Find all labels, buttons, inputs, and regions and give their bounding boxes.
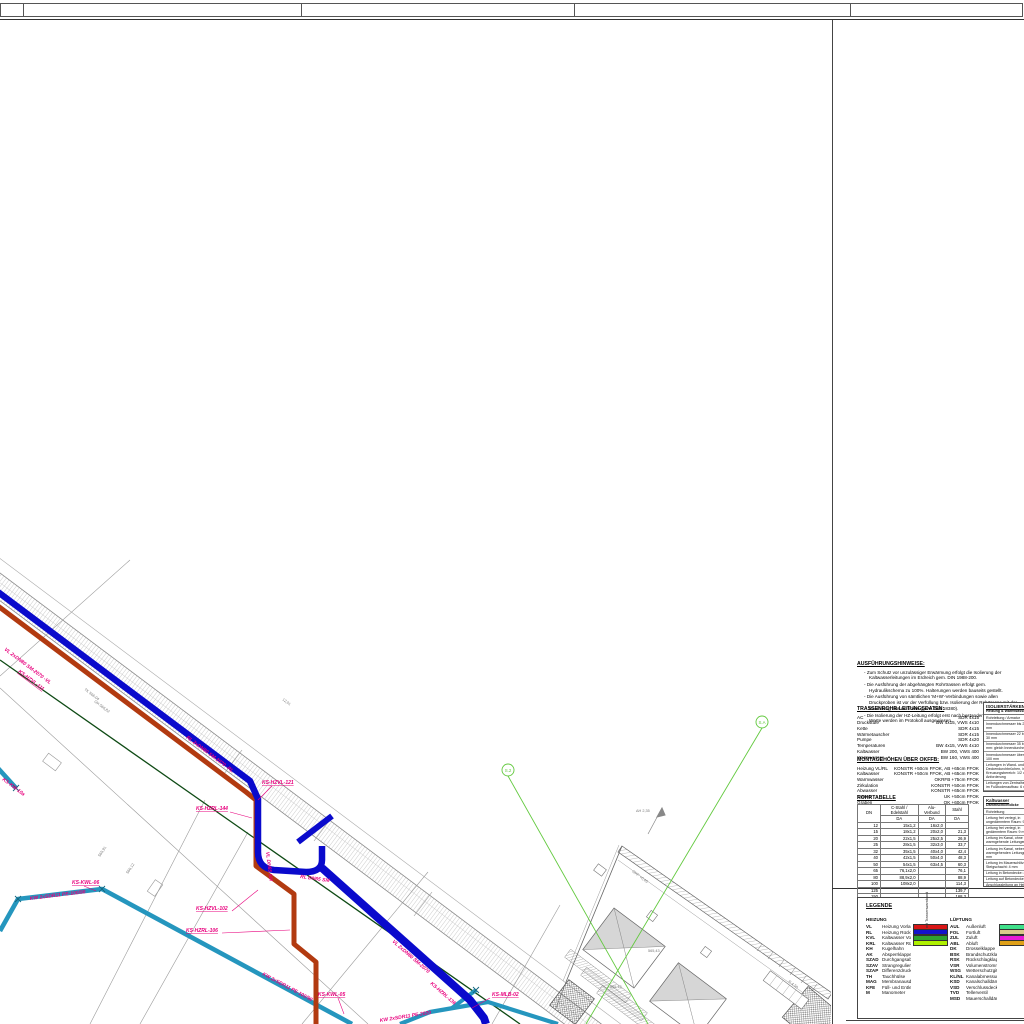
legend-name: Membranausdehnungsgefäß — [882, 979, 911, 984]
legend-abbr: VSD — [950, 985, 966, 990]
legend-name: Fortluft — [966, 930, 997, 935]
legend-name: Kaltwasser Vorlauf — [882, 935, 911, 940]
legend-name: Differenzdruckregler — [882, 968, 911, 973]
legend-abbr: VSR — [950, 963, 966, 968]
legend-abbr: AUL — [950, 924, 966, 929]
legend-abbr: WSG — [950, 968, 966, 973]
legend-abbr: RL — [866, 930, 882, 935]
legend-section-title: HEIZUNG — [866, 917, 948, 922]
elevation-label: OK 566,82 — [93, 700, 110, 714]
legend-name: Mauerschalldämpfer — [966, 996, 997, 1001]
isobox-row: Leitung frei verlegt, in ungedämmtem Rau… — [984, 815, 1024, 825]
legend-name: Verschlussdeckel — [966, 985, 997, 990]
elevation-label: 565,12 — [610, 985, 622, 989]
isolierung-heizung-box: ISOLIERSTÄRKEN Heizung & Warmwasser Rohr… — [983, 702, 1024, 792]
pipe-label: KS-HZVL-102 — [196, 906, 228, 912]
pipe-label: KS-HZVL-121 — [262, 780, 294, 786]
legend-title: LEGENDE — [866, 903, 892, 909]
legend-name: Manometer — [882, 990, 911, 995]
legend-entry: ABL Abluft — [950, 941, 1024, 947]
legend-section-title: LÜFTUNG — [950, 917, 1024, 922]
legend-name: Füll- und Entleerungshahn — [882, 985, 911, 990]
pipe-label: KS-KWL-05 — [318, 992, 345, 998]
trassendaten-rows: AC SDR 4x15 Druckstufe BW 4x15, VWS 4x10… — [857, 715, 979, 761]
legend-abbr: KVL — [866, 935, 882, 940]
legend-abbr: M — [866, 990, 882, 995]
survey-markers — [43, 753, 163, 896]
pipe-label: KS-MLB-02 — [492, 992, 519, 998]
isolierung-kaltwasser-box: Kaltwasser Dämmschichtdicke RohrleitungL… — [983, 796, 1024, 887]
legend-abbr: RSK — [950, 957, 966, 962]
isobox-rows: RohrleitungLeitung frei verlegt, in unge… — [984, 809, 1024, 887]
legend-abbr: SZAD — [866, 957, 882, 962]
pipe-label: KS-HZRL-106 — [186, 928, 218, 934]
pipe-label: KS-KWL-06 — [72, 880, 99, 886]
pipe-label: KW 2xSDR11 PE-100/90 — [30, 889, 87, 902]
legend-abbr: ABL — [950, 941, 966, 946]
col-header: C-Stahl / Edelstahl — [881, 804, 919, 816]
legend-name: Kugelhahn — [882, 946, 911, 951]
legend-abbr: BSK — [950, 952, 966, 957]
legend-abbr: TH — [866, 974, 882, 979]
note-item: Zum Schutz vor unzulässiger Erwärmung er… — [864, 670, 1022, 681]
isobox-row: Leitung im Mauerschlitz / Steigschacht: … — [984, 860, 1024, 870]
elevation-label: 565,43 — [648, 949, 660, 953]
isobox-row: Innendurchmesser 22 bis 35 mm: 30 mm — [984, 732, 1024, 742]
legend-abbr: MSD — [950, 996, 966, 1001]
legend-name: Heizung Vorlauf — [882, 924, 911, 929]
legend-abbr: FOL — [950, 930, 966, 935]
legend-abbr: AK — [866, 952, 882, 957]
heizung-vl-pipe — [0, 600, 316, 1024]
col-header: Stahl — [945, 804, 968, 816]
isobox-row: Anschlussleitung an Heizkörper: 4 mm — [984, 883, 1024, 887]
legend-color-swatch — [999, 940, 1024, 946]
legend-abbr: KSD — [950, 979, 966, 984]
col-header: Alu-Verbund — [918, 804, 945, 816]
legend-name: Rückschlagklappe — [966, 957, 997, 962]
legend-abbr: KRL — [866, 941, 882, 946]
skylight — [650, 963, 727, 1024]
elevation-label: 566,12 — [126, 863, 136, 875]
legend-name: Absperrklappe — [882, 952, 911, 957]
legend-lueftung-column: LÜFTUNG AUL Außenluft FOL Fortluft — [950, 917, 1024, 1001]
isobox-row: Stichleitungen bis 8 m Länge: 1/2 der An… — [984, 791, 1024, 792]
legend-name: Kanalschalldämpfer — [966, 979, 997, 984]
section-marker-labels: S.2 S.A — [505, 720, 766, 773]
isobox-row: Innendurchmesser 35 bis 100 mm: gleich I… — [984, 742, 1024, 752]
legend-abbr: MAG — [866, 979, 882, 984]
legend-entry: M Manometer — [866, 990, 948, 996]
elevation-label: TK 566,04 — [83, 688, 99, 702]
isobox-row: Innendurchmesser über 100 mm: 100 mm — [984, 752, 1024, 762]
isobox-row: Leitung im Kanal, neben warmgehenden Lei… — [984, 846, 1024, 860]
isobox-row: Leitungen in Wand- und Deckendurchbrüche… — [984, 762, 1024, 781]
isobox-row: Leitung frei verlegt, in gedämmtem Raum:… — [984, 826, 1024, 836]
legend-heizung-column: HEIZUNG VL Heizung Vorlauf RL Heizung Rü… — [866, 917, 948, 996]
rohrtabelle-title: ROHRTABELLE — [857, 795, 969, 802]
legend-entry: MSD Mauerschalldämpfer — [950, 996, 1024, 1002]
legend-name: Brandschutzklappe — [966, 952, 997, 957]
legend-name: Außenluft — [966, 924, 997, 929]
legend-name: Kanalabmessungen lt. DIN — [966, 974, 997, 979]
section-marker: S.2 — [505, 768, 512, 773]
legend-name: Volumenstromregler — [966, 963, 997, 968]
legend-name: Kaltwasser Rücklauf — [882, 941, 911, 946]
isobox-row: Leitungen von Zentralheizungen im Fußbod… — [984, 781, 1024, 791]
montage-title: MONTAGEHÖHEN ÜBER OKFFB: — [857, 757, 979, 764]
elevation-label: ΔH 2,35 — [636, 809, 650, 813]
section-marker: S.A — [758, 720, 765, 725]
legend-abbr: KFE — [866, 985, 882, 990]
plan-sheet: S.2 S.A — [0, 0, 1024, 1024]
legend-abbr: DK — [950, 946, 966, 951]
legend-name: Wetterschutzgitter — [966, 968, 997, 973]
legend-abbr: VL — [866, 924, 882, 929]
legend-abbr: KH — [866, 946, 882, 951]
note-item: Die Ausführung der abgehängten Rohrtrass… — [864, 682, 1022, 693]
legend-name: Tellerventil — [966, 990, 997, 995]
legend-vertical-note: mit Trassenwarnband — [925, 876, 929, 928]
rohrtabelle-block: ROHRTABELLE DN C-Stahl / Edelstahl Alu-V… — [857, 795, 969, 901]
legend-abbr: TVD — [950, 990, 966, 995]
legend-name: Tauchhülse — [882, 974, 911, 979]
utility-corridor-band — [0, 548, 646, 1024]
isobox-row: Innendurchmesser bis 22 mm: 20 mm — [984, 721, 1024, 731]
legend-name: Drosselklappe — [966, 946, 997, 951]
pipe-label: KS-KW-10a — [1, 777, 26, 798]
legend-color-swatch — [913, 940, 948, 946]
elevation-label: 565,91 — [98, 846, 108, 858]
trassendaten-block: TRASSENROHR-LEITUNGSDATEN: AC SDR 4x15 D… — [857, 706, 979, 760]
pipe-label: KW 2xSDR11 PE-100/90 — [261, 971, 313, 1003]
legend-abbr: SZAP — [866, 968, 882, 973]
col-header: DN — [858, 804, 881, 822]
legend-abbr: KL/NL — [950, 974, 966, 979]
rohrtabelle: DN C-Stahl / Edelstahl Alu-Verbund Stahl… — [857, 804, 969, 901]
legend-abbr: SZAV — [866, 963, 882, 968]
notes-title: AUSFÜHRUNGSHINWEISE: — [857, 661, 1022, 668]
elevation-label: 12,01 — [281, 698, 291, 707]
legend-name: Heizung Rücklauf — [882, 930, 911, 935]
legend-name: Strangregulierventil — [882, 963, 911, 968]
legend-name: Zuluft — [966, 935, 997, 940]
trassendaten-title: TRASSENROHR-LEITUNGSDATEN: — [857, 706, 979, 713]
north-arrow-icon — [648, 808, 665, 834]
legend-name: Abluft — [966, 941, 997, 946]
legend-name: Durchgangsabsperrventil — [882, 957, 911, 962]
pipe-label: KS-HZRL-144 — [196, 806, 228, 812]
legend-abbr: ZUL — [950, 935, 966, 940]
isobox-row: Leitung im Kanal, ohne warmgehende Leitu… — [984, 836, 1024, 846]
isobox-rows: Rohrleitung / ArmaturInnendurchmesser bi… — [984, 715, 1024, 792]
legend-entry: KRL Kaltwasser Rücklauf — [866, 941, 948, 947]
legend: LEGENDE HEIZUNG VL Heizung Vorlauf RL He… — [857, 897, 1024, 1019]
